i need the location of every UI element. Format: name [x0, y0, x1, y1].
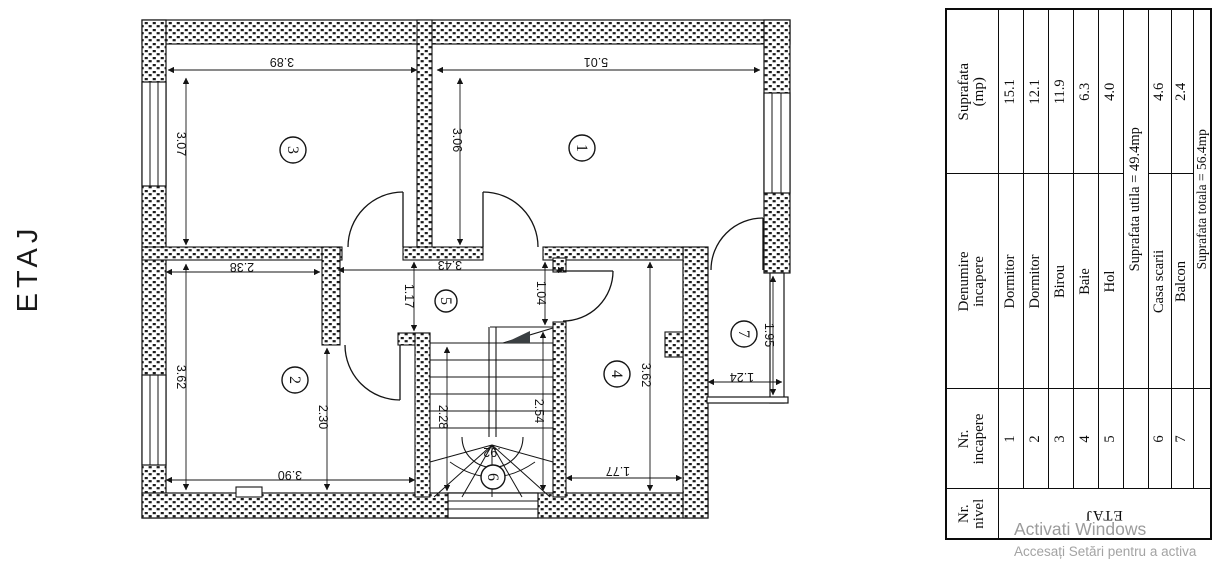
wall-room2-right: [322, 247, 340, 345]
window-room3-left: [142, 82, 166, 186]
wall-divider-room3-room1: [417, 20, 432, 260]
wall-mid-a: [142, 247, 342, 260]
header-suprafata: Suprafata(mp): [946, 9, 998, 174]
table-row: ETAJ 1 Dormitor 15.1: [998, 9, 1023, 539]
room-bubble-6: 6: [481, 465, 505, 489]
dim-3-62-room4: 3.62: [639, 363, 653, 387]
dim-2-54: 2.54: [532, 399, 546, 423]
svg-text:6: 6: [484, 473, 501, 481]
window-room1-right: [764, 93, 790, 193]
wall-top: [142, 20, 790, 44]
dim-0-92: .92: [483, 445, 500, 459]
header-denumire: Denumireincapere: [946, 174, 998, 389]
room-bubble-5: 5: [435, 290, 457, 312]
dim-3-07: 3.07: [174, 132, 188, 156]
svg-text:3: 3: [284, 146, 301, 154]
table-row: 2Dormitor12.1: [1023, 9, 1048, 539]
dim-2-28: 2.28: [436, 405, 450, 429]
table-row: 7Balcon2.4: [1171, 9, 1193, 539]
dim-3-43: 3.43: [438, 258, 462, 272]
dim-1-24: 1.24: [730, 370, 754, 384]
windows-activation-subtext: Accesați Setări pentru a activa: [1014, 544, 1196, 559]
dim-3-62-room2: 3.62: [174, 365, 188, 389]
pilaster-room4: [665, 332, 683, 357]
table-row-total-utila: Suprafata utila = 49.4mp: [1123, 9, 1148, 539]
svg-text:5: 5: [437, 297, 454, 305]
room-bubble-1: 1: [569, 135, 595, 161]
dim-3-89: 3.89: [270, 55, 294, 69]
screenshot-stage: ETAJ: [0, 0, 1218, 561]
svg-text:1: 1: [573, 144, 590, 152]
pilaster-room2: [236, 487, 262, 497]
dim-1-77: 1.77: [606, 464, 630, 478]
table-row: 3Birou11.9: [1048, 9, 1073, 539]
door-balcony: [711, 218, 763, 270]
table-row: 4Baie6.3: [1073, 9, 1098, 539]
header-nr-nivel: Nr.nivel: [946, 489, 998, 539]
header-nr-incapere: Nr.incapere: [946, 389, 998, 489]
table-row-total-totala: Suprafata totala = 56.4mp: [1193, 9, 1211, 539]
svg-text:2: 2: [286, 376, 303, 384]
dim-2-38: 2.38: [230, 260, 254, 274]
window-stair-bottom: [448, 493, 538, 518]
wall-right-lower: [683, 247, 708, 518]
door-room3: [348, 192, 403, 247]
wall-stair-right-lower: [553, 322, 566, 497]
stair-direction-arrow: [505, 331, 530, 343]
room-bubble-3: 3: [280, 137, 306, 163]
table-row: 6Casa scarii4.6: [1148, 9, 1171, 539]
svg-text:7: 7: [735, 330, 752, 338]
dim-3-06: 3.06: [450, 128, 464, 152]
svg-text:4: 4: [608, 370, 625, 378]
interior-walls: [142, 20, 683, 497]
window-room2-left: [142, 375, 166, 465]
room-bubble-2: 2: [282, 367, 308, 393]
table-row: 5Hol4.0: [1098, 9, 1123, 539]
windows-activation-watermark: Activati Windows: [1014, 519, 1146, 540]
dim-1-04: 1.04: [534, 281, 548, 305]
dim-3-90: 3.90: [278, 468, 302, 482]
door-room4: [563, 271, 613, 321]
door-room1: [483, 192, 538, 247]
dim-5-01: 5.01: [584, 55, 608, 69]
room-bubble-4: 4: [604, 361, 630, 387]
dim-1-95: 1.95: [762, 323, 776, 347]
dim-2-30: 2.30: [316, 405, 330, 429]
wall-stair-left: [415, 333, 430, 497]
dim-1-17: 1.17: [402, 284, 416, 308]
door-room2: [345, 345, 400, 400]
area-summary-table: Nr.nivel Nr.incapere Denumireincapere Su…: [945, 10, 1210, 540]
floor-plan-drawing: 3.89 5.01 3.07 3.06 2.38 3.43 1.17 1.04 …: [0, 0, 840, 561]
room-bubble-7: 7: [731, 321, 757, 347]
